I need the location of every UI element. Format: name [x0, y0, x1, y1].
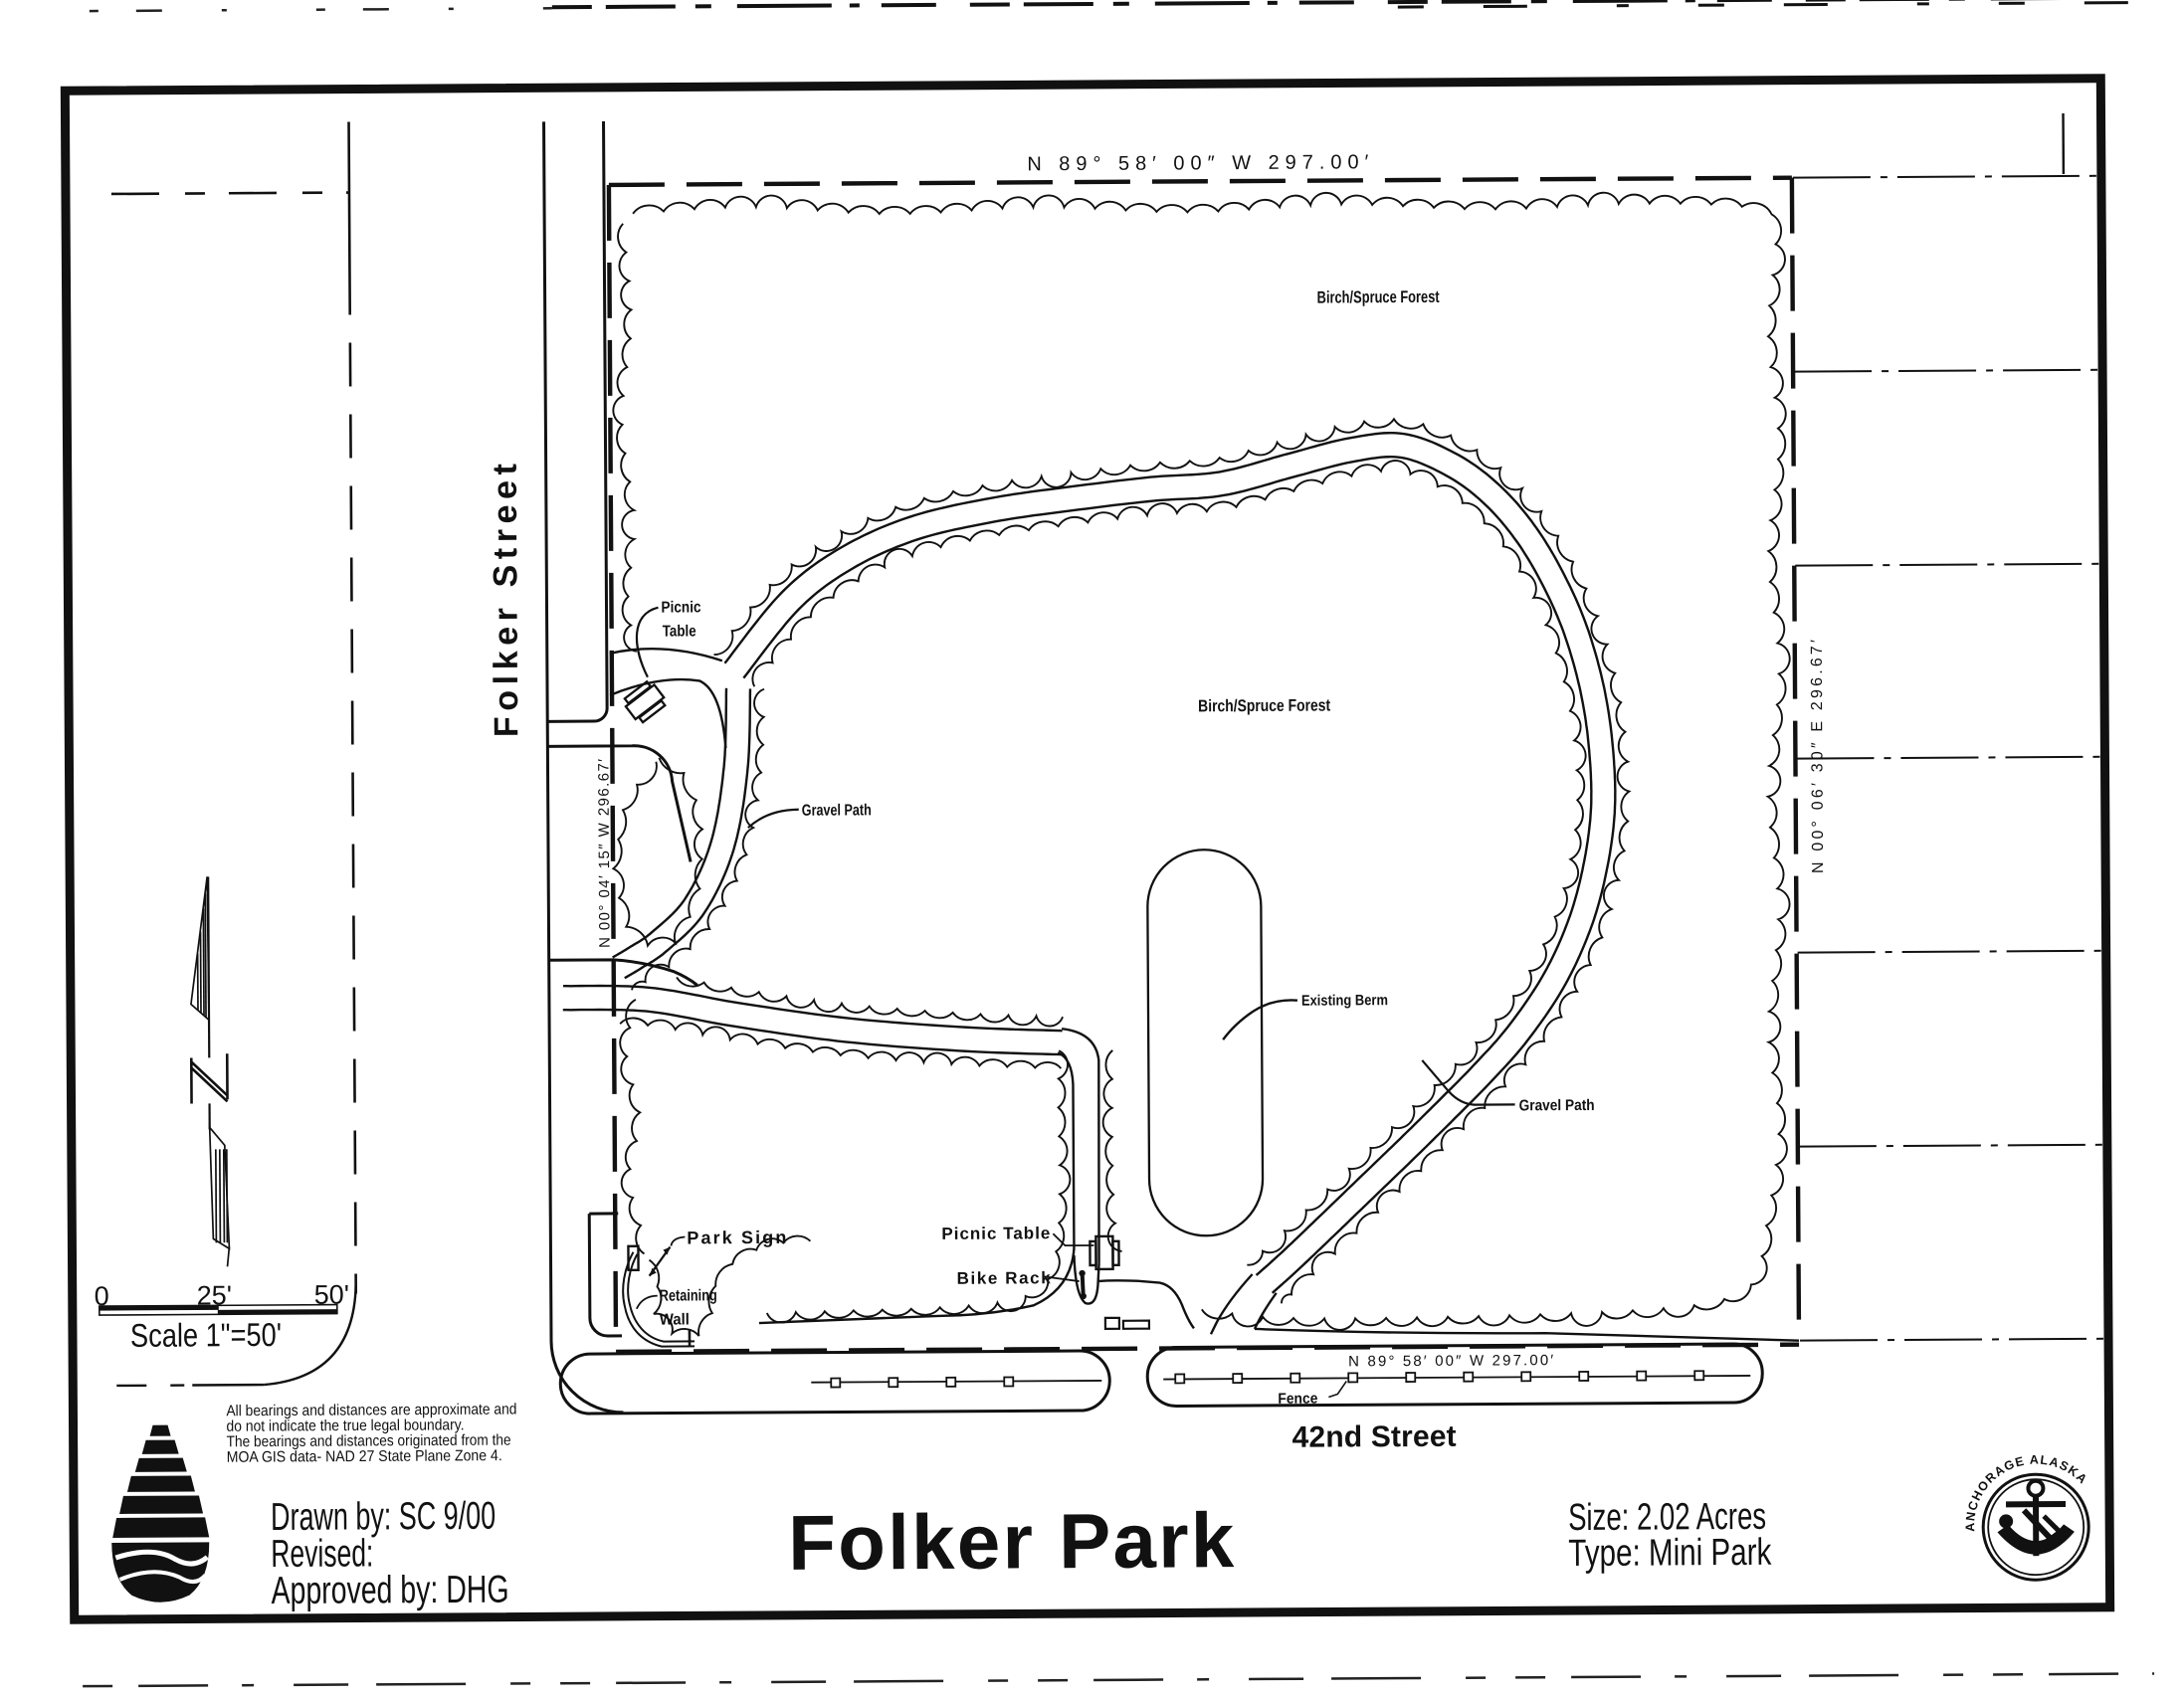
svg-text:Park Sign: Park Sign [687, 1227, 786, 1248]
svg-text:N 00° 06′ 30″ E 296.67′: N 00° 06′ 30″ E 296.67′ [1809, 640, 1827, 873]
svg-text:Wall: Wall [660, 1311, 690, 1328]
svg-text:Fence: Fence [1278, 1391, 1317, 1408]
svg-text:Table: Table [663, 623, 696, 640]
svg-text:Gravel Path: Gravel Path [802, 802, 872, 819]
svg-text:N 00° 04′ 15″ W 296.67′: N 00° 04′ 15″ W 296.67′ [595, 759, 613, 948]
svg-text:Scale 1"=50': Scale 1"=50' [130, 1316, 282, 1354]
svg-text:Retaining: Retaining [660, 1287, 717, 1304]
svg-text:Folker Park: Folker Park [788, 1496, 1235, 1587]
svg-text:Approved by: DHG: Approved by: DHG [271, 1569, 508, 1612]
svg-text:Picnic Table: Picnic Table [941, 1224, 1050, 1243]
svg-text:Birch/Spruce Forest: Birch/Spruce Forest [1317, 287, 1440, 307]
svg-text:N 89° 58′ 00″ W 297.00′: N 89° 58′ 00″ W 297.00′ [1348, 1352, 1553, 1370]
svg-text:MOA GIS data- NAD 27 State Pla: MOA GIS data- NAD 27 State Plane Zone 4. [227, 1447, 502, 1466]
svg-text:Type: Mini Park: Type: Mini Park [1568, 1532, 1772, 1575]
svg-text:Birch/Spruce Forest: Birch/Spruce Forest [1198, 696, 1330, 716]
svg-text:42nd Street: 42nd Street [1292, 1420, 1457, 1454]
svg-text:Existing Berm: Existing Berm [1301, 992, 1388, 1010]
svg-text:Picnic: Picnic [661, 599, 700, 616]
svg-text:Gravel Path: Gravel Path [1519, 1097, 1595, 1114]
